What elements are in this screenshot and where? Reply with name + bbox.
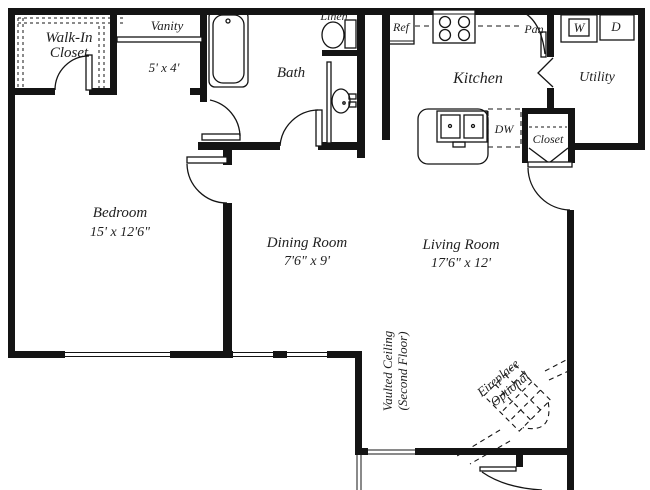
vanity-counter: [117, 37, 202, 42]
dining-room-label: Dining Room: [266, 235, 348, 251]
entry-door-swing: [528, 162, 572, 210]
dining-room-dims: 7'6" x 9': [284, 254, 331, 269]
utility-bifold-door: [538, 58, 553, 87]
walk-in-closet-label-1: Walk-In: [46, 30, 93, 46]
bedroom-dims: 15' x 12'6": [90, 225, 150, 240]
pantry-label: Pan: [523, 22, 543, 36]
entry-closet-label: Closet: [533, 132, 564, 146]
washer-label: W: [574, 20, 586, 35]
toilet: [322, 20, 356, 48]
bedroom-label: Bedroom: [93, 205, 148, 221]
kitchen-label: Kitchen: [452, 70, 503, 87]
windows: [65, 353, 415, 455]
living-room-label: Living Room: [421, 237, 499, 253]
floor-plan: Walk-In Closet Vanity 5' x 4' Bath Linen…: [0, 0, 650, 490]
vaulted-ceiling-label-1: Vaulted Ceiling: [380, 330, 395, 411]
linen-label: Linen: [319, 9, 347, 23]
dishwasher-label: DW: [494, 122, 515, 136]
bath-door-swing-bedroom: [202, 100, 240, 140]
patio: [357, 455, 574, 490]
utility-label: Utility: [579, 70, 616, 85]
vanity-dims: 5' x 4': [149, 60, 180, 75]
vaulted-ceiling-label-2: (Second Floor): [395, 331, 410, 410]
bath-door-swing-hall: [280, 110, 322, 146]
kitchen-sink-counter: [418, 109, 488, 164]
entry-closet-bifold-door: [529, 148, 568, 163]
bedroom-door-swing: [187, 157, 227, 203]
interior-walls: [8, 8, 575, 358]
bath-vanity-sink: [327, 62, 356, 143]
living-room-dims: 17'6" x 12': [431, 256, 492, 271]
dryer-label: D: [610, 19, 621, 34]
stove: [433, 10, 475, 43]
bath-label: Bath: [277, 65, 305, 81]
floor-plan-drawing: Walk-In Closet Vanity 5' x 4' Bath Linen…: [0, 0, 650, 490]
refrigerator-label: Ref: [392, 20, 411, 34]
vanity-label: Vanity: [151, 18, 184, 33]
bathtub: [209, 11, 248, 87]
walk-in-closet-label-2: Closet: [50, 45, 89, 61]
